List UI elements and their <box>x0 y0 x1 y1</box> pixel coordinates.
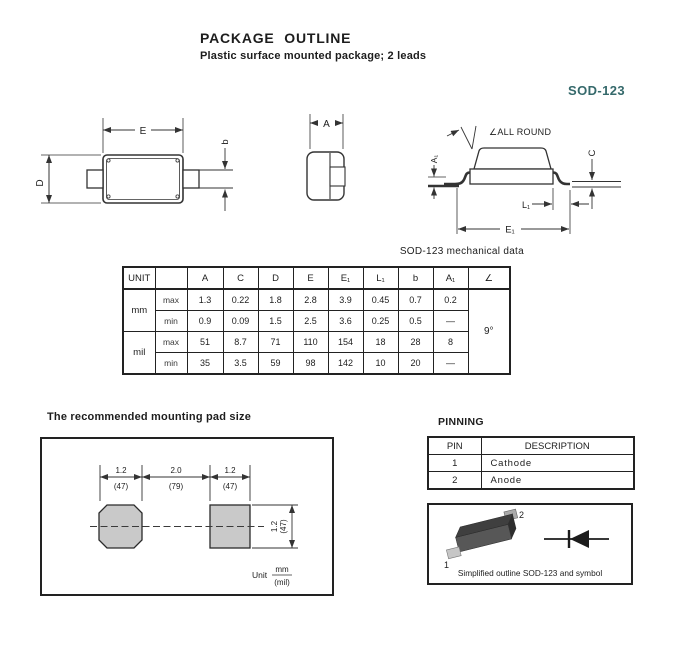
mech-row-mil-min: min 35 3.5 59 98 142 10 20 — <box>123 353 510 375</box>
package-outline-drawings: E D b A <box>0 0 674 250</box>
col-header-a: A <box>187 267 223 289</box>
dim-l1-label: L₁ <box>522 200 530 210</box>
mech-row-mil-max: mil max 51 8.7 71 110 154 18 28 8 <box>123 332 510 353</box>
pinning-header-row: PIN DESCRIPTION <box>428 437 634 455</box>
mechanical-data-table: UNIT A C D E E₁ L₁ b A₁ ∠ mm max 1.3 0.2… <box>122 266 511 375</box>
mounting-pad-drawing: 1.2 (47) 2.0 (79) 1.2 (47) 1.2 (47) Unit… <box>42 439 332 594</box>
pad-dim-left-mm: 1.2 <box>115 466 127 475</box>
pad-dim-mid-mil: (79) <box>169 482 184 491</box>
cell: 0.7 <box>398 289 433 311</box>
pin-col-header: PIN <box>428 437 481 455</box>
pinning-title: PINNING <box>438 416 484 428</box>
dim-a1-label: A₁ <box>429 155 439 164</box>
cell: 110 <box>293 332 328 353</box>
col-header-c: C <box>223 267 258 289</box>
cell: 28 <box>398 332 433 353</box>
side-view-drawing <box>428 126 621 234</box>
cell: 0.5 <box>398 311 433 332</box>
pad-dim-side-mil: (47) <box>279 519 288 534</box>
diode-symbol <box>544 530 609 548</box>
cell: 51 <box>187 332 223 353</box>
package-3d-view <box>441 509 523 559</box>
col-header-b: b <box>398 267 433 289</box>
all-round-note: ∠ALL ROUND <box>489 127 551 137</box>
cell: 3.9 <box>328 289 363 311</box>
col-header-a1: A₁ <box>433 267 468 289</box>
dim-e-label: E <box>140 126 147 137</box>
cell: 98 <box>293 353 328 375</box>
mounting-pad-title: The recommended mounting pad size <box>47 411 251 423</box>
cell: 8.7 <box>223 332 258 353</box>
mech-row-mm-min: min 0.9 0.09 1.5 2.5 3.6 0.25 0.5 — <box>123 311 510 332</box>
pinning-row-2: 2 Anode <box>428 472 634 490</box>
cell: 1.3 <box>187 289 223 311</box>
unit-mil: mil <box>123 332 155 375</box>
unit-label: Unit <box>252 570 268 580</box>
cell: 0.25 <box>363 311 398 332</box>
col-header-unit: UNIT <box>123 267 155 289</box>
pad-dim-right-mil: (47) <box>223 482 238 491</box>
cell: 0.09 <box>223 311 258 332</box>
pad-dim-right-mm: 1.2 <box>224 466 236 475</box>
mech-row-mm-max: mm max 1.3 0.22 1.8 2.8 3.9 0.45 0.7 0.2… <box>123 289 510 311</box>
dim-b-label: b <box>220 139 231 144</box>
unit-denominator: (mil) <box>274 578 290 587</box>
cell: 0.2 <box>433 289 468 311</box>
pin-number: 2 <box>428 472 481 490</box>
col-header-blank <box>155 267 187 289</box>
pin2-label: 2 <box>519 510 524 520</box>
pinning-table: PIN DESCRIPTION 1 Cathode 2 Anode <box>427 436 635 490</box>
outline-symbol-box: 2 1 Simplified outline SOD-123 and symbo… <box>427 503 633 585</box>
cell: 142 <box>328 353 363 375</box>
col-header-angle: ∠ <box>468 267 510 289</box>
mech-header-row: UNIT A C D E E₁ L₁ b A₁ ∠ <box>123 267 510 289</box>
cell: 8 <box>433 332 468 353</box>
pad-dim-side-mm: 1.2 <box>270 520 279 532</box>
bound-label: min <box>155 311 187 332</box>
cell: — <box>433 353 468 375</box>
bound-label: min <box>155 353 187 375</box>
cell: 0.9 <box>187 311 223 332</box>
cell: 35 <box>187 353 223 375</box>
cell: 0.45 <box>363 289 398 311</box>
cell: 71 <box>258 332 293 353</box>
bound-label: max <box>155 332 187 353</box>
cell: 18 <box>363 332 398 353</box>
dim-d-label: D <box>35 179 46 186</box>
cell: 59 <box>258 353 293 375</box>
pin-description: Cathode <box>481 455 634 472</box>
dim-a-label: A <box>323 119 330 130</box>
col-header-e: E <box>293 267 328 289</box>
unit-numerator: mm <box>275 565 289 574</box>
cell: 2.8 <box>293 289 328 311</box>
col-header-l1: L₁ <box>363 267 398 289</box>
unit-mm: mm <box>123 289 155 332</box>
cell: 1.8 <box>258 289 293 311</box>
cell: 0.22 <box>223 289 258 311</box>
dim-c-label: C <box>587 149 598 156</box>
cell: 10 <box>363 353 398 375</box>
mech-table-title: SOD-123 mechanical data <box>322 246 524 257</box>
pin-description: Anode <box>481 472 634 490</box>
cell: 2.5 <box>293 311 328 332</box>
cell: — <box>433 311 468 332</box>
angle-value: 9° <box>468 289 510 374</box>
pin1-label: 1 <box>444 560 449 570</box>
pinning-row-1: 1 Cathode <box>428 455 634 472</box>
cell: 3.5 <box>223 353 258 375</box>
top-view-drawing <box>41 118 233 211</box>
cell: 154 <box>328 332 363 353</box>
dim-e1-label: E₁ <box>505 225 515 236</box>
col-header-d: D <box>258 267 293 289</box>
cell: 3.6 <box>328 311 363 332</box>
pad-dim-mid-mm: 2.0 <box>170 466 182 475</box>
cell: 20 <box>398 353 433 375</box>
outline-symbol-drawing: 2 1 Simplified outline SOD-123 and symbo… <box>429 505 631 583</box>
col-header-e1: E₁ <box>328 267 363 289</box>
pin-number: 1 <box>428 455 481 472</box>
pad-dim-left-mil: (47) <box>114 482 129 491</box>
outline-symbol-caption: Simplified outline SOD-123 and symbol <box>458 568 603 578</box>
bound-label: max <box>155 289 187 311</box>
description-col-header: DESCRIPTION <box>481 437 634 455</box>
cell: 1.5 <box>258 311 293 332</box>
mounting-pad-box: 1.2 (47) 2.0 (79) 1.2 (47) 1.2 (47) Unit… <box>40 437 334 596</box>
